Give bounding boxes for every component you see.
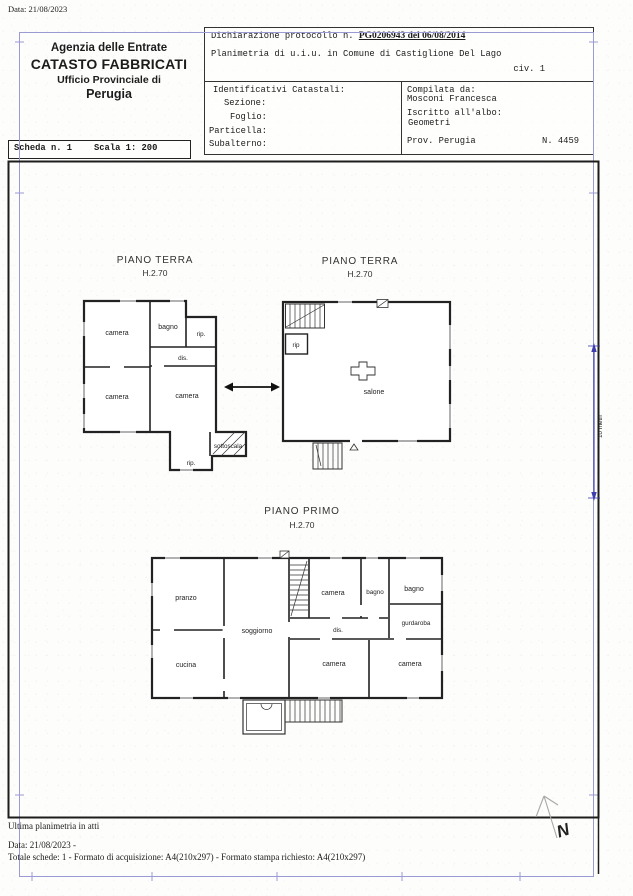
chimney-marker <box>280 551 289 558</box>
north-label: N <box>554 819 572 841</box>
room-label: camera <box>398 661 421 668</box>
room-label: bagno <box>404 586 424 593</box>
room-label: camera <box>322 661 345 668</box>
room-label: camera <box>105 394 128 401</box>
chimney-marker <box>377 300 388 308</box>
scale-bar-label: 10 metri <box>597 415 604 438</box>
external-stairs <box>313 443 342 469</box>
room-label: camera <box>175 393 198 400</box>
room-label: camera <box>105 330 128 337</box>
plan-primo: PIANO PRIMO H.2.70 <box>150 506 445 734</box>
footer-ultima: Ultima planimetria in atti <box>8 821 99 831</box>
outer-walls <box>152 558 442 698</box>
balcony <box>243 700 285 734</box>
footer-totale: Totale schede: 1 - Formato di acquisizio… <box>8 852 365 862</box>
room-label: rip <box>293 342 300 349</box>
room-label: dis. <box>333 627 343 634</box>
room-label: soggiorno <box>242 628 273 635</box>
floor-plan-drawing: PIANO TERRA H.2.70 camera ba <box>0 0 633 896</box>
room-label: rip. <box>197 331 206 338</box>
external-stairs <box>285 700 342 722</box>
plan-terra-right: PIANO TERRA H.2.70 <box>283 256 452 469</box>
room-label: cucina <box>176 662 196 669</box>
room-label: bagno <box>366 589 384 596</box>
room-label: gurdaroba <box>402 620 431 627</box>
north-arrow-icon: N <box>536 796 572 842</box>
room-label: sottoscala <box>214 443 243 450</box>
room-label: bagno <box>158 324 178 331</box>
plan-terra-left: PIANO TERRA H.2.70 camera ba <box>82 255 246 472</box>
scale-dimension: 10 metri <box>588 343 604 501</box>
room-label: dis. <box>178 355 188 362</box>
plan-title: PIANO TERRA <box>322 256 398 267</box>
plan-height: H.2.70 <box>289 520 314 530</box>
footer-data: Data: 21/08/2023 - <box>8 840 76 850</box>
link-arrow <box>224 383 280 392</box>
room-label: camera <box>321 590 344 597</box>
room-label: salone <box>364 389 385 396</box>
plan-title: PIANO TERRA <box>117 255 193 266</box>
plan-title: PIANO PRIMO <box>264 506 339 517</box>
registration-frame <box>15 33 598 882</box>
plan-height: H.2.70 <box>142 268 167 278</box>
door-triangle-marker <box>350 444 358 450</box>
room-label: pranzo <box>175 595 197 602</box>
room-label: rip. <box>187 460 196 467</box>
plan-height: H.2.70 <box>347 269 372 279</box>
cadastral-document-page: Data: 21/08/2023 Agenzia delle Entrate C… <box>0 0 633 896</box>
drawing-frame <box>9 162 599 875</box>
